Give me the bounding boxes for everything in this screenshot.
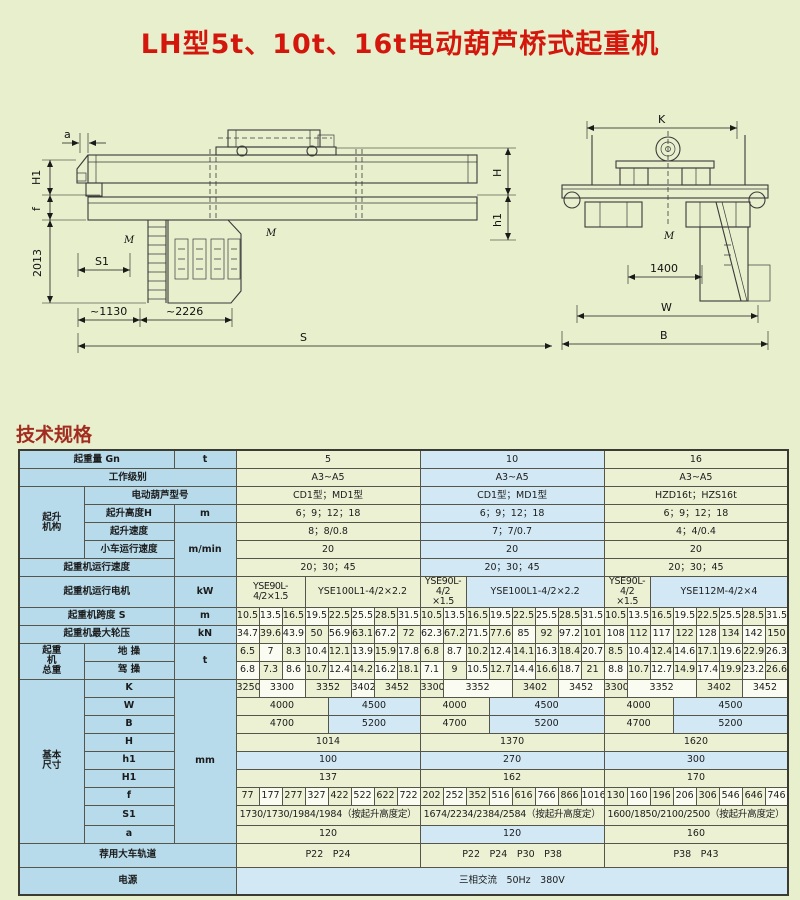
- value-cell: 6；9；12；18: [236, 505, 420, 523]
- value-cell: 85: [512, 625, 535, 643]
- value-cell: 1600/1850/2100/2500（按起升高度定）: [604, 805, 788, 825]
- value-cell: 20；30；45: [604, 559, 788, 577]
- value-cell: 120: [420, 825, 604, 843]
- value-cell: CD1型；MD1型: [236, 487, 420, 505]
- value-cell: 306: [696, 787, 719, 805]
- value-cell: 616: [512, 787, 535, 805]
- value-cell: 10.7: [305, 661, 328, 679]
- row-label-cell: K: [84, 679, 174, 697]
- value-cell: 71.5: [466, 625, 489, 643]
- value-cell: 16.5: [282, 607, 305, 625]
- row-label-cell: mm: [174, 679, 236, 843]
- value-cell: 17.4: [696, 661, 719, 679]
- value-cell: 13.5: [443, 607, 466, 625]
- value-cell: 17.8: [397, 643, 420, 661]
- row-label-cell: 地 操: [84, 643, 174, 661]
- value-cell: A3~A5: [420, 469, 604, 487]
- value-cell: 28.5: [558, 607, 581, 625]
- value-cell: 62.3: [420, 625, 443, 643]
- value-cell: 866: [558, 787, 581, 805]
- dim-label-2226: ~2226: [166, 305, 203, 318]
- value-cell: 3352: [627, 679, 696, 697]
- value-cell: 746: [765, 787, 788, 805]
- row-label-cell: 电动葫芦型号: [84, 487, 236, 505]
- value-cell: P38 P43: [604, 843, 788, 867]
- value-cell: CD1型；MD1型: [420, 487, 604, 505]
- value-cell: 12.4: [489, 643, 512, 661]
- value-cell: 19.6: [719, 643, 742, 661]
- row-label-cell: kN: [174, 625, 236, 643]
- value-cell: 20；30；45: [420, 559, 604, 577]
- value-cell: A3~A5: [604, 469, 788, 487]
- value-cell: 4500: [328, 697, 420, 715]
- value-cell: 25.5: [351, 607, 374, 625]
- dim-label-h1: h1: [491, 213, 504, 227]
- row-label-cell: S1: [84, 805, 174, 825]
- value-cell: 4500: [489, 697, 604, 715]
- value-cell: 4000: [236, 697, 328, 715]
- row-label-cell: 起重 机 总重: [19, 643, 84, 679]
- value-cell: 22.5: [328, 607, 351, 625]
- crane-side-view: a H1 f 2013 S1 ~1130 ~2226 S H h1 M M: [30, 128, 552, 353]
- value-cell: 1730/1730/1984/1984（按起升高度定）: [236, 805, 420, 825]
- value-cell: P22 P24: [236, 843, 420, 867]
- value-cell: 20: [604, 541, 788, 559]
- dim-label-W: W: [661, 301, 672, 314]
- value-cell: 12.4: [650, 643, 673, 661]
- section-mark-m3: M: [663, 231, 675, 242]
- value-cell: 20: [420, 541, 604, 559]
- value-cell: 13.5: [259, 607, 282, 625]
- value-cell: 10.5: [236, 607, 259, 625]
- value-cell: 12.1: [328, 643, 351, 661]
- value-cell: 31.5: [765, 607, 788, 625]
- row-label-cell: m/min: [174, 523, 236, 577]
- value-cell: 67.2: [374, 625, 397, 643]
- value-cell: 12.4: [328, 661, 351, 679]
- value-cell: 23.2: [742, 661, 765, 679]
- dim-label-K: K: [658, 113, 666, 126]
- value-cell: 108: [604, 625, 627, 643]
- value-cell: 16: [604, 450, 788, 469]
- row-label-cell: 起升高度H: [84, 505, 174, 523]
- value-cell: 22.5: [696, 607, 719, 625]
- value-cell: 137: [236, 769, 420, 787]
- row-label-cell: f: [84, 787, 174, 805]
- row-label-cell: 荐用大车轨道: [19, 843, 236, 867]
- value-cell: 18.1: [397, 661, 420, 679]
- row-label-cell: 起重机跨度 S: [19, 607, 174, 625]
- value-cell: 12.7: [650, 661, 673, 679]
- value-cell: 14.6: [673, 643, 696, 661]
- value-cell: 3352: [443, 679, 512, 697]
- value-cell: 300: [604, 751, 788, 769]
- value-cell: 39.6: [259, 625, 282, 643]
- value-cell: 21: [581, 661, 604, 679]
- value-cell: 8.3: [282, 643, 305, 661]
- value-cell: 8.5: [604, 643, 627, 661]
- crane-end-view: K 1400 W: [562, 113, 770, 350]
- row-label-cell: 起重机运行电机: [19, 577, 174, 608]
- row-label-cell: h1: [84, 751, 174, 769]
- value-cell: 8.7: [443, 643, 466, 661]
- value-cell: 3402: [512, 679, 558, 697]
- value-cell: 56.9: [328, 625, 351, 643]
- value-cell: 10.4: [627, 643, 650, 661]
- value-cell: 622: [374, 787, 397, 805]
- value-cell: 97.2: [558, 625, 581, 643]
- value-cell: 5200: [673, 715, 788, 733]
- dim-label-f: f: [30, 206, 43, 211]
- value-cell: 252: [443, 787, 466, 805]
- value-cell: 4000: [420, 697, 489, 715]
- value-cell: 4700: [420, 715, 489, 733]
- row-label-cell: t: [174, 643, 236, 679]
- value-cell: 14.9: [673, 661, 696, 679]
- row-label-cell: H1: [84, 769, 174, 787]
- value-cell: 12.7: [489, 661, 512, 679]
- value-cell: 67.2: [443, 625, 466, 643]
- value-cell: 19.5: [489, 607, 512, 625]
- value-cell: 3300: [259, 679, 305, 697]
- value-cell: 三相交流 50Hz 380V: [236, 867, 788, 895]
- value-cell: 3300: [604, 679, 627, 697]
- value-cell: 5200: [489, 715, 604, 733]
- row-label-cell: H: [84, 733, 174, 751]
- value-cell: 3402: [696, 679, 742, 697]
- value-cell: 22.9: [742, 643, 765, 661]
- value-cell: 19.9: [719, 661, 742, 679]
- value-cell: 3250: [236, 679, 259, 697]
- value-cell: A3~A5: [236, 469, 420, 487]
- value-cell: 77.6: [489, 625, 512, 643]
- value-cell: 6.5: [236, 643, 259, 661]
- value-cell: 6；9；12；18: [420, 505, 604, 523]
- value-cell: 112: [627, 625, 650, 643]
- value-cell: 177: [259, 787, 282, 805]
- value-cell: YSE100L1-4/2×2.2: [466, 577, 604, 608]
- value-cell: 8；8/0.8: [236, 523, 420, 541]
- value-cell: 516: [489, 787, 512, 805]
- row-label-cell: W: [84, 697, 174, 715]
- value-cell: 1620: [604, 733, 788, 751]
- value-cell: 1014: [236, 733, 420, 751]
- value-cell: 18.7: [558, 661, 581, 679]
- row-label-cell: kW: [174, 577, 236, 608]
- value-cell: 4500: [673, 697, 788, 715]
- value-cell: 1674/2234/2384/2584（按起升高度定）: [420, 805, 604, 825]
- value-cell: 722: [397, 787, 420, 805]
- catalog-page: { "page": { "title": "LH型5t、10t、16t电动葫芦桥…: [0, 0, 800, 900]
- value-cell: 25.5: [535, 607, 558, 625]
- section-mark-m1: M: [123, 235, 135, 246]
- dim-label-1400: 1400: [650, 262, 678, 275]
- value-cell: 134: [719, 625, 742, 643]
- value-cell: 17.1: [696, 643, 719, 661]
- row-label-cell: 电源: [19, 867, 236, 895]
- value-cell: 10.5: [420, 607, 443, 625]
- row-label-cell: 起升 机构: [19, 487, 84, 559]
- value-cell: 202: [420, 787, 443, 805]
- value-cell: 522: [351, 787, 374, 805]
- value-cell: 28.5: [742, 607, 765, 625]
- value-cell: 10.2: [466, 643, 489, 661]
- row-label-cell: 起重机最大轮压: [19, 625, 174, 643]
- value-cell: 92: [535, 625, 558, 643]
- value-cell: HZD16t；HZS16t: [604, 487, 788, 505]
- value-cell: 130: [604, 787, 627, 805]
- value-cell: 13.5: [627, 607, 650, 625]
- value-cell: 4；4/0.4: [604, 523, 788, 541]
- row-label-cell: 工作级别: [19, 469, 236, 487]
- value-cell: 10.5: [604, 607, 627, 625]
- spec-table: 起重量 Gnt51016工作级别A3~A5A3~A5A3~A5起升 机构电动葫芦…: [18, 449, 789, 896]
- dim-label-H: H: [491, 169, 504, 177]
- value-cell: 19.5: [673, 607, 696, 625]
- value-cell: 4700: [604, 715, 673, 733]
- value-cell: 7.3: [259, 661, 282, 679]
- value-cell: 6.8: [420, 643, 443, 661]
- value-cell: 19.5: [305, 607, 328, 625]
- section-heading: 技术规格: [16, 420, 92, 447]
- page-title: LH型5t、10t、16t电动葫芦桥式起重机: [0, 22, 800, 61]
- row-label-cell: a: [84, 825, 174, 843]
- value-cell: 327: [305, 787, 328, 805]
- dim-label-2013: 2013: [31, 249, 44, 277]
- row-label-cell: 起升速度: [84, 523, 174, 541]
- value-cell: 7: [259, 643, 282, 661]
- value-cell: 4700: [236, 715, 328, 733]
- value-cell: 206: [673, 787, 696, 805]
- value-cell: 6.8: [236, 661, 259, 679]
- value-cell: 646: [742, 787, 765, 805]
- value-cell: 270: [420, 751, 604, 769]
- value-cell: 3452: [374, 679, 420, 697]
- value-cell: 3452: [742, 679, 788, 697]
- value-cell: 31.5: [581, 607, 604, 625]
- value-cell: 8.8: [604, 661, 627, 679]
- value-cell: 28.5: [374, 607, 397, 625]
- row-label-cell: 起重量 Gn: [19, 450, 174, 469]
- value-cell: YSE90L-4/2 ×1.5: [604, 577, 650, 608]
- value-cell: 150: [765, 625, 788, 643]
- value-cell: 4000: [604, 697, 673, 715]
- value-cell: 10.4: [305, 643, 328, 661]
- value-cell: 8.6: [282, 661, 305, 679]
- dim-label-B: B: [660, 329, 668, 342]
- value-cell: 72: [397, 625, 420, 643]
- value-cell: YSE90L-4/2 ×1.5: [420, 577, 466, 608]
- value-cell: 15.9: [374, 643, 397, 661]
- value-cell: 20.7: [581, 643, 604, 661]
- value-cell: 13.9: [351, 643, 374, 661]
- value-cell: 16.6: [535, 661, 558, 679]
- value-cell: YSE112M-4/2×4: [650, 577, 788, 608]
- value-cell: 122: [673, 625, 696, 643]
- value-cell: 7；7/0.7: [420, 523, 604, 541]
- row-label-cell: 小车运行速度: [84, 541, 174, 559]
- value-cell: 6；9；12；18: [604, 505, 788, 523]
- value-cell: 34.7: [236, 625, 259, 643]
- value-cell: 63.1: [351, 625, 374, 643]
- value-cell: 50: [305, 625, 328, 643]
- value-cell: 14.1: [512, 643, 535, 661]
- value-cell: 31.5: [397, 607, 420, 625]
- value-cell: YSE100L1-4/2×2.2: [305, 577, 420, 608]
- value-cell: 5200: [328, 715, 420, 733]
- value-cell: 16.2: [374, 661, 397, 679]
- value-cell: P22 P24 P30 P38: [420, 843, 604, 867]
- value-cell: 43.9: [282, 625, 305, 643]
- value-cell: 128: [696, 625, 719, 643]
- value-cell: 10: [420, 450, 604, 469]
- value-cell: 162: [420, 769, 604, 787]
- value-cell: 1370: [420, 733, 604, 751]
- value-cell: 766: [535, 787, 558, 805]
- value-cell: 26.6: [765, 661, 788, 679]
- spec-table-body: 起重量 Gnt51016工作级别A3~A5A3~A5A3~A5起升 机构电动葫芦…: [19, 450, 788, 895]
- dim-label-S1-side: S1: [95, 255, 109, 268]
- row-label-cell: m: [174, 607, 236, 625]
- row-label-cell: 基本 尺寸: [19, 679, 84, 843]
- value-cell: 422: [328, 787, 351, 805]
- value-cell: 16.3: [535, 643, 558, 661]
- value-cell: 117: [650, 625, 673, 643]
- value-cell: YSE90L-4/2×1.5: [236, 577, 305, 608]
- row-label-cell: t: [174, 450, 236, 469]
- value-cell: 20；30；45: [236, 559, 420, 577]
- dim-label-a: a: [64, 128, 71, 141]
- row-label-cell: B: [84, 715, 174, 733]
- value-cell: 20: [236, 541, 420, 559]
- value-cell: 25.5: [719, 607, 742, 625]
- value-cell: 3402: [351, 679, 374, 697]
- dim-label-S: S: [300, 331, 307, 344]
- row-label-cell: m: [174, 505, 236, 523]
- value-cell: 160: [604, 825, 788, 843]
- technical-drawing: a H1 f 2013 S1 ~1130 ~2226 S H h1 M M: [0, 105, 800, 385]
- value-cell: 16.5: [650, 607, 673, 625]
- value-cell: 352: [466, 787, 489, 805]
- value-cell: 3352: [305, 679, 351, 697]
- value-cell: 10.7: [627, 661, 650, 679]
- value-cell: 142: [742, 625, 765, 643]
- value-cell: 170: [604, 769, 788, 787]
- value-cell: 14.2: [351, 661, 374, 679]
- row-label-cell: 起重机运行速度: [19, 559, 174, 577]
- value-cell: 120: [236, 825, 420, 843]
- value-cell: 9: [443, 661, 466, 679]
- value-cell: 101: [581, 625, 604, 643]
- value-cell: 160: [627, 787, 650, 805]
- value-cell: 14.4: [512, 661, 535, 679]
- value-cell: 546: [719, 787, 742, 805]
- dim-label-1130: ~1130: [90, 305, 127, 318]
- value-cell: 5: [236, 450, 420, 469]
- value-cell: 22.5: [512, 607, 535, 625]
- value-cell: 18.4: [558, 643, 581, 661]
- value-cell: 7.1: [420, 661, 443, 679]
- value-cell: 196: [650, 787, 673, 805]
- value-cell: 1016: [581, 787, 604, 805]
- value-cell: 77: [236, 787, 259, 805]
- value-cell: 16.5: [466, 607, 489, 625]
- value-cell: 100: [236, 751, 420, 769]
- value-cell: 10.5: [466, 661, 489, 679]
- section-mark-m2: M: [265, 228, 277, 239]
- row-label-cell: 驾 操: [84, 661, 174, 679]
- value-cell: 277: [282, 787, 305, 805]
- value-cell: 3300: [420, 679, 443, 697]
- value-cell: 3452: [558, 679, 604, 697]
- dim-label-H1: H1: [30, 170, 43, 185]
- value-cell: 26.3: [765, 643, 788, 661]
